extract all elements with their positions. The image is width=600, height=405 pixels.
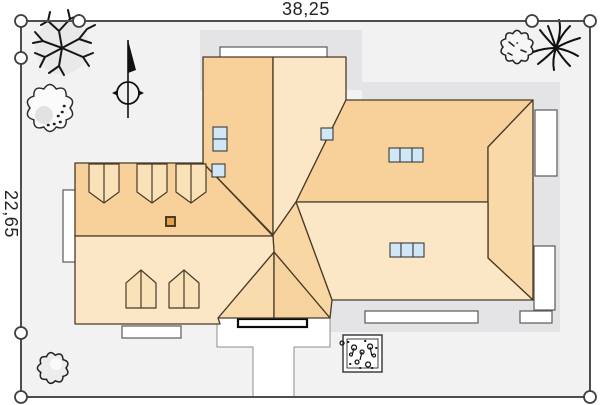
bush-small-highlight — [50, 358, 62, 370]
skylight-main-north-3 — [412, 148, 423, 162]
skylight-main-north-1 — [389, 148, 400, 162]
left-terrace — [122, 326, 181, 338]
east-window-lower — [534, 246, 555, 310]
west-terrace — [63, 190, 76, 262]
south-terrace-short — [520, 311, 552, 323]
skylight-main-south-2 — [401, 243, 413, 257]
survey-marker — [15, 52, 27, 64]
survey-marker — [15, 15, 27, 27]
survey-marker — [526, 15, 538, 27]
skylight-garage-pair-b — [213, 139, 227, 151]
skylight-garage-pair-a — [213, 127, 227, 139]
bush-large-shade — [35, 106, 53, 124]
survey-marker — [73, 15, 85, 27]
survey-marker — [15, 327, 27, 339]
skylight-main-south-3 — [413, 243, 424, 257]
dimension-width-label: 38,25 — [282, 0, 330, 18]
site-plan-svg — [0, 0, 600, 405]
site-plan-canvas: 38,25 22,65 — [0, 0, 600, 405]
skylight-garage-single-east — [321, 128, 333, 140]
entrance-step — [238, 319, 307, 327]
spiky-plant-center — [554, 46, 559, 51]
east-window-upper — [535, 110, 557, 176]
paving-north-band — [362, 82, 560, 100]
survey-marker — [584, 15, 596, 27]
skylight-main-south-1 — [390, 243, 401, 257]
bush-topright-icon — [501, 30, 533, 63]
chimney — [166, 217, 175, 226]
bush-large-icon — [27, 85, 72, 132]
survey-marker — [15, 391, 27, 403]
dimension-height-label: 22,65 — [2, 190, 20, 238]
south-terrace-long — [365, 311, 478, 323]
skylight-main-north-2 — [400, 148, 412, 162]
survey-marker — [584, 391, 596, 403]
skylight-garage-single-west — [212, 164, 225, 177]
